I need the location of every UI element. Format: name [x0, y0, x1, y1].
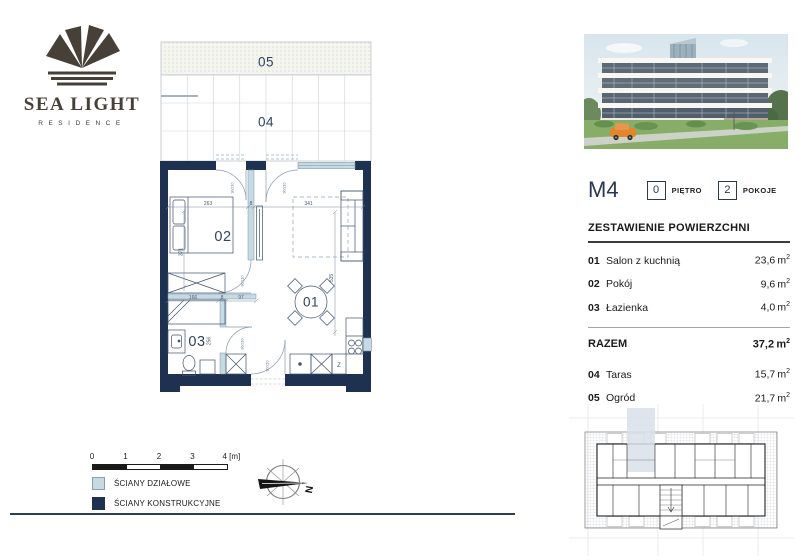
legend-item: ŚCIANY KONSTRUKCYJNE [92, 497, 221, 510]
table-row: 04 Taras 15,7 m2 [588, 368, 790, 381]
row-value: 4,0 m2 [761, 301, 790, 314]
footer-divider [10, 513, 515, 515]
door-size-labels: 90/210 90/210 80/210 80/210 90/210 [231, 183, 287, 372]
sun-logo-icon [20, 24, 144, 88]
staircase [660, 485, 682, 516]
area-table-title: ZESTAWIENIE POWIERZCHNI [588, 222, 790, 243]
legend-label: ŚCIANY KONSTRUKCYJNE [114, 499, 221, 508]
bathroom-cabinet [200, 360, 215, 374]
floor-number-box: 0 [647, 181, 666, 200]
shower [168, 300, 225, 324]
svg-text:166: 166 [189, 295, 198, 301]
row-value: 15,7 m2 [755, 368, 790, 381]
dishwasher [311, 354, 332, 374]
row-name: Pokój [606, 278, 761, 290]
total-label: RAZEM [588, 338, 753, 350]
svg-text:8: 8 [250, 201, 253, 207]
partition-wall-swatch [92, 477, 105, 490]
room-label-02: 02 [214, 229, 231, 245]
bathroom-sink [168, 330, 185, 353]
area-table: ZESTAWIENIE POWIERZCHNI 01 Salon z kuchn… [588, 222, 790, 404]
scale-tick: 1 [123, 452, 127, 461]
unit-id: M4 [588, 177, 619, 203]
scale-tick: 4 [m] [222, 452, 240, 461]
legend-item: ŚCIANY DZIAŁOWE [92, 477, 221, 490]
wall-legend: ŚCIANY DZIAŁOWE ŚCIANY KONSTRUKCYJNE [92, 477, 221, 517]
unit-header: M4 0 PIĘTRO 2 POKOJE [588, 178, 798, 202]
window [363, 338, 372, 351]
brochure-page: SEA LIGHT RESIDENCE [0, 0, 800, 560]
brand-name: SEA LIGHT [20, 94, 144, 116]
structural-walls [160, 161, 371, 392]
compass-rose: N [250, 446, 322, 522]
scale-tick: 2 [157, 452, 161, 461]
svg-text:371: 371 [179, 248, 185, 257]
dimension-lines [166, 205, 365, 336]
brand-logo: SEA LIGHT RESIDENCE [20, 24, 144, 127]
svg-text:8: 8 [221, 295, 224, 301]
svg-text:90/210: 90/210 [283, 183, 287, 194]
table-separator [588, 327, 790, 328]
room-label-04: 04 [258, 115, 274, 130]
row-number: 02 [588, 278, 606, 290]
svg-text:535: 535 [329, 274, 335, 283]
kitchen-sink [290, 354, 311, 374]
rooms-number-box: 2 [718, 181, 737, 200]
svg-text:97: 97 [238, 295, 244, 301]
highlighted-unit [627, 408, 655, 472]
room-label-01: 01 [303, 295, 319, 310]
row-number: 01 [588, 255, 606, 267]
structural-wall-swatch [92, 497, 105, 510]
table-row: 02 Pokój 9,6 m2 [588, 278, 790, 291]
row-name: Łazienka [606, 302, 761, 314]
table-total-row: RAZEM 37,2 m2 [588, 338, 790, 351]
rooms-label: POKOJE [743, 186, 777, 195]
toilet [183, 356, 196, 376]
svg-text:256: 256 [207, 337, 213, 346]
brand-subtitle: RESIDENCE [20, 120, 144, 127]
svg-text:263: 263 [204, 201, 213, 207]
svg-text:80/210: 80/210 [241, 276, 245, 287]
table-row: 03 Łazienka 4,0 m2 [588, 301, 790, 314]
room-label-05: 05 [258, 55, 274, 70]
door-swings [216, 170, 298, 374]
scale-tick: 0 [90, 452, 94, 461]
scale-tick: 3 [190, 452, 194, 461]
kitchen-counter-stove [346, 318, 363, 354]
sliding-wardrobe [257, 206, 263, 260]
fridge-label: Z [337, 363, 341, 369]
sofa [341, 191, 363, 261]
row-name: Taras [606, 369, 755, 381]
svg-text:90/210: 90/210 [266, 361, 270, 372]
unit-floorplan: 263 8 341 371 535 166 8 97 256 90/210 90… [148, 38, 398, 398]
row-name: Salon z kuchnią [606, 255, 755, 267]
north-label: N [302, 485, 314, 494]
row-value: 9,6 m2 [761, 278, 790, 291]
building-photo [584, 34, 788, 149]
scale-bar: 0 1 2 3 4 [m] [92, 452, 252, 478]
wardrobe [168, 273, 225, 293]
washing-machine [226, 354, 246, 374]
svg-text:80/210: 80/210 [241, 339, 245, 350]
row-number: 03 [588, 302, 606, 314]
row-value: 23,6 m2 [755, 254, 790, 267]
legend-label: ŚCIANY DZIAŁOWE [114, 479, 191, 488]
rug [293, 197, 348, 257]
svg-text:90/210: 90/210 [231, 183, 235, 194]
total-value: 37,2 m2 [753, 338, 790, 351]
row-number: 04 [588, 369, 606, 381]
table-row: 01 Salon z kuchnią 23,6 m2 [588, 254, 790, 267]
floor-label: PIĘTRO [672, 186, 702, 195]
building-key-plan [563, 398, 800, 560]
scale-bar-segments [92, 464, 228, 470]
svg-text:341: 341 [304, 201, 313, 207]
room-label-03: 03 [188, 334, 205, 350]
